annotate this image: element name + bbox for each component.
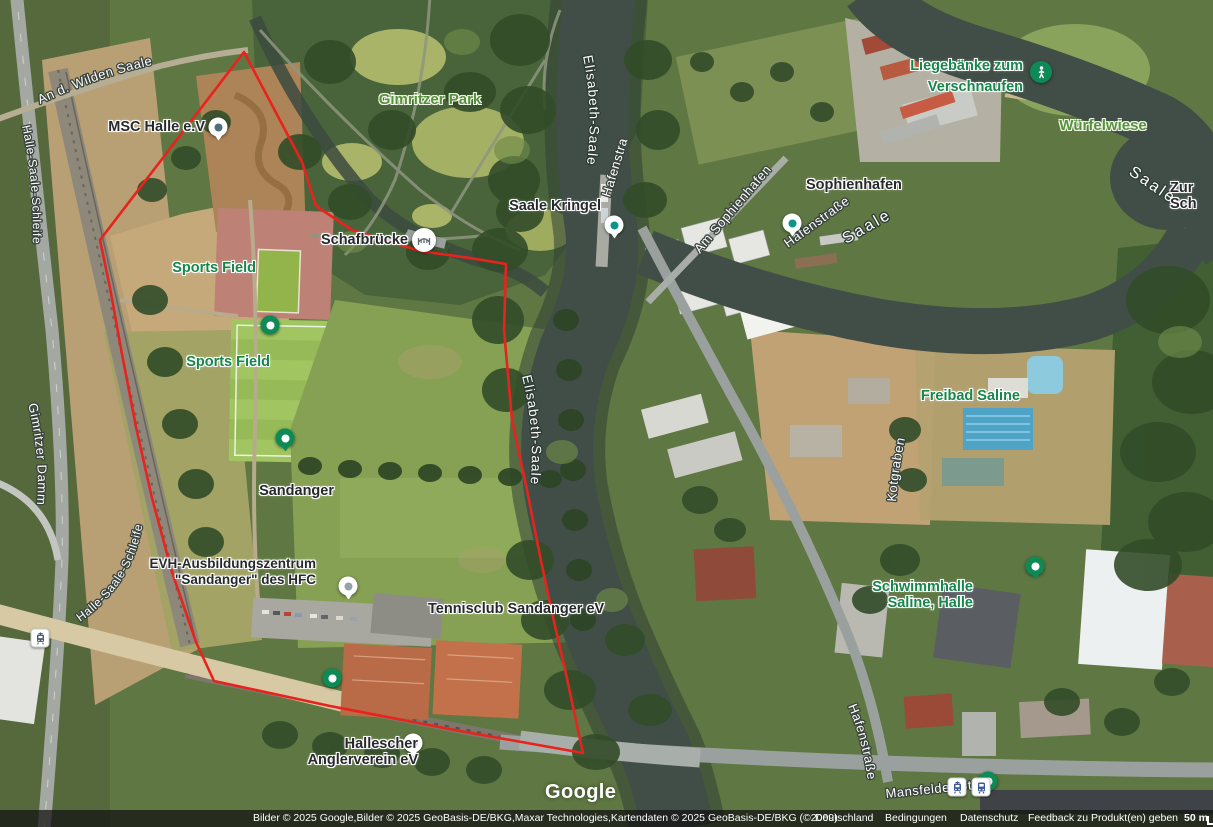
marker-freibad-saline[interactable] (1026, 557, 1045, 576)
tram-station-icon[interactable] (31, 629, 50, 648)
poi-label-sports-field-2[interactable]: Sports Field (186, 354, 270, 370)
poi-label-saale-kringel[interactable]: Saale Kringel (509, 198, 601, 214)
marker-sandanger[interactable] (339, 577, 358, 596)
bridge-icon (417, 234, 431, 246)
marker-sophienhafen[interactable] (783, 214, 802, 233)
poi-label-evh[interactable]: EVH-Ausbildungszentrum "Sandanger" des H… (149, 556, 316, 588)
pedestrian-icon (1036, 66, 1047, 79)
marker-liegebaenke[interactable] (1030, 61, 1052, 83)
marker-sports-field-1[interactable] (261, 316, 280, 335)
scale-label: 50 m (1184, 810, 1208, 827)
attribution-bar: Bilder © 2025 Google,Bilder © 2025 GeoBa… (0, 810, 1213, 827)
marker-schafbruecke[interactable] (412, 228, 436, 252)
bus-icon (976, 781, 986, 793)
marker-msc-halle[interactable] (209, 118, 228, 137)
poi-label-schafbruecke[interactable]: Schafbrücke (321, 232, 408, 248)
copyright-text: Bilder © 2025 Google,Bilder © 2025 GeoBa… (253, 810, 838, 827)
poi-label-anglerverein[interactable]: Hallescher Anglerverein eV (308, 736, 418, 768)
tram-icon (952, 781, 962, 793)
poi-label-schwimmhalle[interactable]: Schwimmhalle Saline, Halle (872, 579, 973, 611)
country-label: Deutschland (815, 810, 873, 827)
feedback-link[interactable]: Feedback zu Produkt(en) geben (1028, 810, 1178, 827)
poi-label-sandanger[interactable]: Sandanger (259, 483, 334, 499)
marker-saale-kringel[interactable] (605, 216, 624, 235)
marker-sports-field-2[interactable] (276, 429, 295, 448)
poi-label-sports-field-1[interactable]: Sports Field (172, 260, 256, 276)
google-logo[interactable]: Google (545, 781, 616, 804)
poi-label-liegebaenke[interactable]: Liegebänke zum Verschnaufen (910, 56, 1023, 98)
mansfelder-bus-station-icon[interactable] (972, 778, 991, 797)
area-label-gimritzer-park: Gimritzer Park (379, 92, 482, 108)
privacy-link[interactable]: Datenschutz (960, 810, 1018, 827)
poi-label-zur-sch[interactable]: Zur Sch (1170, 180, 1213, 212)
poi-label-freibad[interactable]: Freibad Saline (921, 388, 1020, 404)
poi-label-msc-halle[interactable]: MSC Halle e.V (108, 119, 205, 135)
map-viewport[interactable]: An d. Wilden Saale Halle-Saale-Schleife … (0, 0, 1213, 827)
area-label-wuerfelwiese: Würfelwiese (1059, 118, 1147, 134)
mansfelder-tram-station-icon[interactable] (948, 778, 967, 797)
tram-icon (35, 632, 45, 644)
terms-link[interactable]: Bedingungen (885, 810, 947, 827)
scale-bar (1207, 816, 1213, 825)
poi-label-sophienhafen[interactable]: Sophienhafen (806, 177, 902, 193)
marker-evh[interactable] (323, 669, 342, 688)
poi-label-tennisclub[interactable]: Tennisclub Sandanger eV (428, 601, 604, 617)
